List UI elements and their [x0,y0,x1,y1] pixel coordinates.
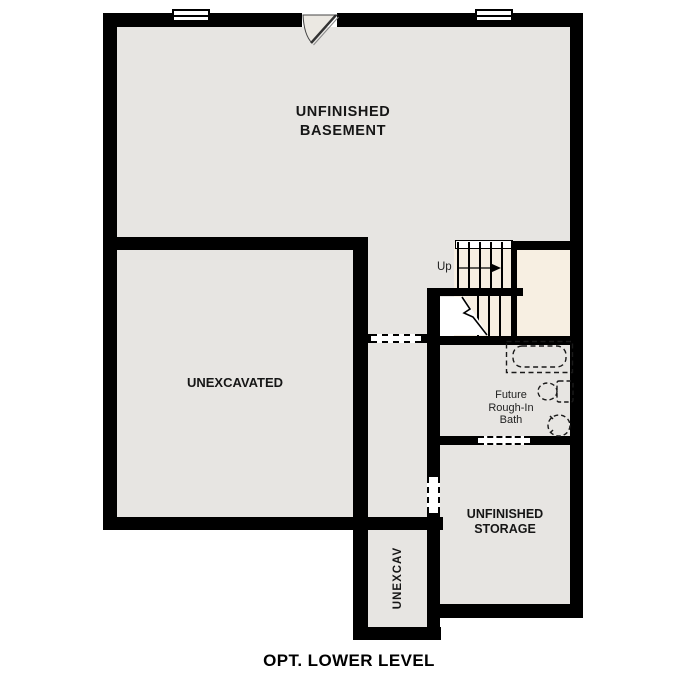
stair-tread [499,296,501,336]
stair-landing-band [455,240,513,249]
stair-tread [457,242,459,288]
storage-opening [427,477,440,513]
stair-tread [468,242,470,288]
stair-tread [501,242,503,288]
window-icon [475,9,513,22]
window-pane-line [174,15,208,17]
window-pane-line [477,15,511,17]
bath-label: Future Rough-In Bath [472,389,550,427]
wall-left [103,13,117,530]
floor-plan: UNFINISHED BASEMENT UNEXCAVATED Future R… [0,0,687,687]
wall-unexcav-left [353,517,368,640]
wall-unexcav-bottom [353,627,441,640]
corridor-floor [362,237,435,527]
basement-label: UNFINISHED BASEMENT [243,103,443,141]
window-icon [172,9,210,22]
stair-tread [488,296,490,336]
plan-title: OPT. LOWER LEVEL [144,651,554,671]
wall-unexcavated-right [353,237,368,530]
stairs-up-label: Up [437,261,452,273]
unexcav-label: UNEXCAV [392,528,406,628]
bath-opening [478,436,530,445]
door-gap [302,13,337,27]
stair-tread [479,242,481,288]
wall-stair-top [511,241,573,250]
unexcavated-label: UNEXCAVATED [165,375,305,390]
stair-tread [490,242,492,288]
wall-stair-mid [430,288,523,296]
wall-right [570,13,583,618]
wall-basement-unexcavated [103,237,366,250]
storage-label: UNFINISHED STORAGE [455,507,555,537]
stair-tread [477,296,479,336]
wall-storage-bottom [436,604,583,618]
wall-stair-bath [427,336,583,345]
corridor-opening [371,334,421,343]
